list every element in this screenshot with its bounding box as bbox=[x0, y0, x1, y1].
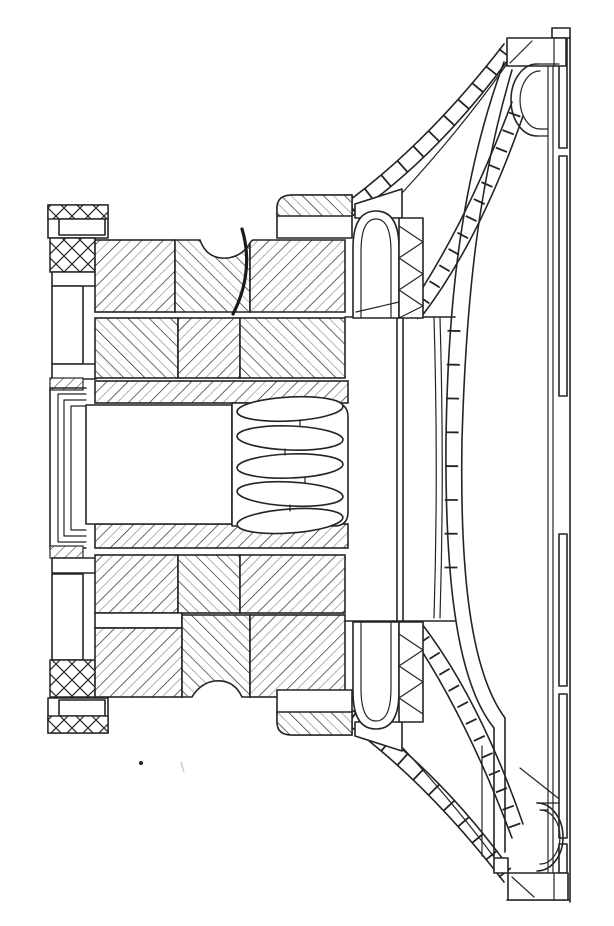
faint-mark bbox=[181, 762, 184, 772]
frame-rim-line bbox=[520, 768, 558, 798]
apex-contour-1 bbox=[434, 318, 436, 618]
lower-plate bbox=[52, 574, 83, 660]
upper-block-1 bbox=[95, 240, 175, 312]
cone-profile-hatch bbox=[451, 330, 454, 580]
lower-block-2 bbox=[178, 555, 240, 613]
upper-gasket bbox=[507, 38, 566, 66]
lower-block-4 bbox=[95, 628, 182, 697]
magnet-upper bbox=[95, 240, 348, 403]
lower-roll-inner bbox=[540, 810, 560, 864]
upper-block-5 bbox=[178, 318, 240, 378]
upper-spacer-band bbox=[52, 272, 96, 286]
upper-cross-block bbox=[50, 238, 95, 272]
bottom-cap-hatch bbox=[48, 716, 108, 733]
cone-front-lower bbox=[403, 748, 505, 872]
flange-bar-segment bbox=[559, 694, 567, 838]
lower-chamfer-hatch bbox=[50, 546, 83, 558]
upper-block-3 bbox=[250, 240, 345, 312]
flange-bar-segment bbox=[559, 156, 567, 396]
lower-foot-hatch bbox=[277, 712, 352, 735]
figure-canvas bbox=[0, 0, 614, 926]
lower-gasket-step bbox=[494, 858, 508, 873]
lower-arm-edge-1 bbox=[350, 726, 504, 882]
lower-coil-arch bbox=[353, 622, 399, 729]
top-cap-window bbox=[59, 219, 105, 235]
lower-spacer-band bbox=[95, 613, 182, 628]
cross-section-drawing bbox=[0, 0, 614, 926]
apex-contour-2 bbox=[440, 318, 442, 618]
lower-step-band bbox=[52, 558, 96, 573]
mounting-flange bbox=[507, 28, 570, 902]
upper-roll-outer bbox=[511, 64, 537, 136]
cone-profile-outer bbox=[446, 62, 504, 856]
flange-bar-segment bbox=[559, 844, 567, 873]
bottom-cap-window bbox=[59, 700, 105, 716]
channel-mid2 bbox=[64, 400, 86, 536]
voice-coil-former bbox=[345, 317, 455, 621]
lower-block-1 bbox=[95, 555, 178, 613]
spring-spider bbox=[232, 394, 348, 536]
flange-top-cap bbox=[552, 28, 570, 38]
upper-block-4 bbox=[95, 318, 178, 378]
pole-cavity bbox=[86, 405, 232, 524]
upper-foot-hatch bbox=[277, 195, 352, 216]
lower-gasket bbox=[508, 873, 568, 900]
top-cap-hatch bbox=[48, 205, 108, 219]
upper-arm-edge-2 bbox=[352, 60, 508, 216]
lower-block-3 bbox=[240, 555, 345, 613]
lower-block-6 bbox=[250, 615, 345, 697]
cone bbox=[403, 62, 558, 872]
channel-mid1 bbox=[58, 394, 86, 542]
channel-outer bbox=[50, 388, 86, 548]
upper-coil-arch bbox=[353, 211, 399, 318]
lower-block-5-notched bbox=[182, 615, 250, 697]
upper-roll-inner bbox=[520, 71, 540, 129]
upper-plate bbox=[52, 286, 83, 364]
upper-step-band bbox=[52, 364, 96, 379]
channel-inner bbox=[71, 406, 86, 530]
speck bbox=[139, 761, 143, 765]
flange-bar-segment bbox=[559, 534, 567, 686]
cone-front-upper bbox=[403, 64, 507, 192]
surround-rolls bbox=[511, 64, 563, 871]
magnet-lower bbox=[95, 524, 348, 697]
lower-cross-block bbox=[50, 660, 95, 697]
upper-block-6 bbox=[240, 318, 345, 378]
voice-coil bbox=[353, 189, 423, 751]
